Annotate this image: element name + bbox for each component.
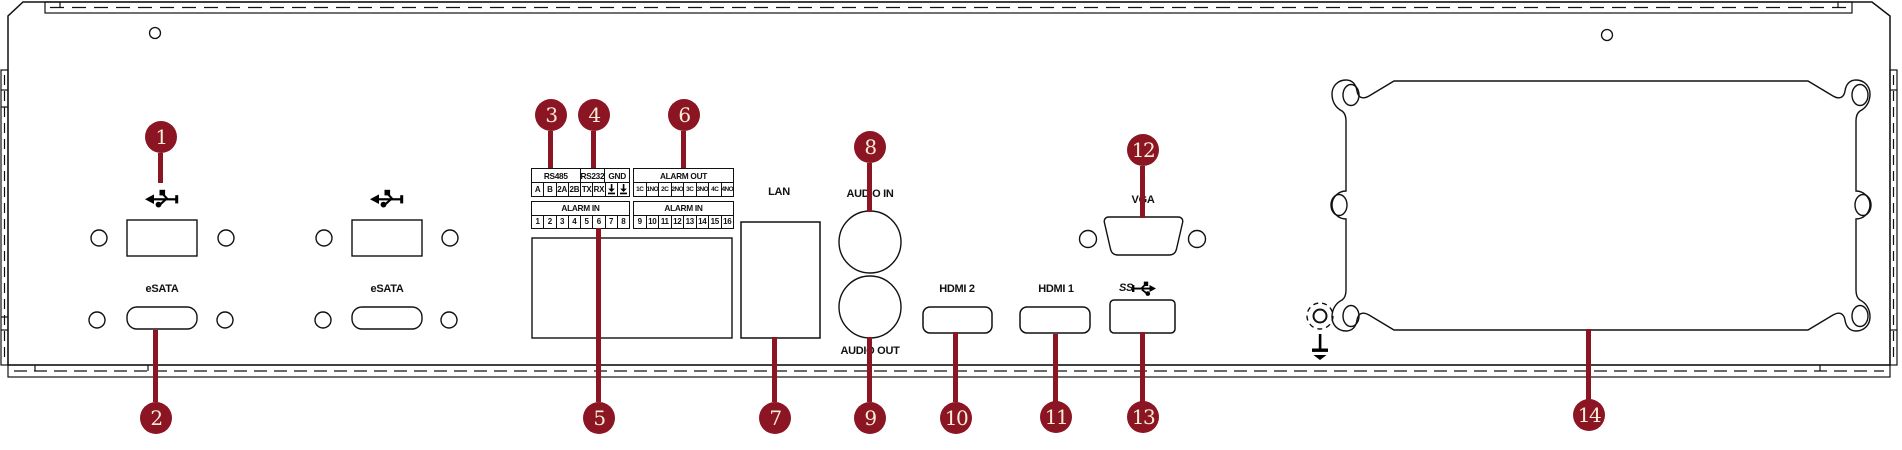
callout-stem-11	[1053, 334, 1058, 402]
callout-stem-7	[772, 337, 777, 402]
callout-stem-13	[1140, 332, 1145, 402]
callout-stem-1	[158, 153, 163, 183]
terminal-cell: 11	[658, 216, 671, 229]
plate-hole	[1343, 85, 1359, 106]
alarm-in-cell-row: 1 2 3 4 5 6 7 8	[532, 215, 629, 229]
callout-14: 14	[1573, 399, 1605, 431]
terminal-cell: 3NO	[696, 183, 709, 196]
esata-port-2	[315, 307, 457, 329]
screw-hole	[441, 312, 457, 328]
plate-hole	[1852, 85, 1868, 106]
alarm-in-header: ALARM IN	[532, 202, 629, 215]
terminal-cell: RX	[592, 183, 604, 196]
alarm-in-cell-row: 9 10 11 12 13 14 15 16	[634, 215, 733, 229]
callout-5: 5	[583, 402, 615, 434]
screw-hole	[1189, 231, 1206, 248]
callout-stem-10	[953, 332, 958, 402]
esata-port-1	[89, 307, 233, 329]
usb-port-2	[316, 220, 458, 256]
earth-ground-icon	[1312, 334, 1328, 360]
alarm-out-cell-row: 1C 1NO 2C 2NO 3C 3NO 4C 4NO	[634, 182, 733, 196]
usb3-ss-label: SS	[1119, 282, 1133, 294]
alarm-out-header-row: ALARM OUT	[634, 169, 733, 182]
hdmi2-label: HDMI 2	[939, 283, 974, 295]
terminal-cell: 14	[696, 216, 709, 229]
rs232-header: RS232	[580, 169, 605, 182]
gnd-header: GND	[604, 169, 629, 182]
chassis-line-art	[0, 0, 1902, 450]
terminal-cell: 10	[646, 216, 659, 229]
callout-stem-3	[548, 131, 553, 168]
alarm-in-header-row: ALARM IN	[532, 202, 629, 215]
ground-icon	[617, 183, 629, 196]
power-supply-plate	[1331, 80, 1871, 331]
plate-hole	[1331, 195, 1347, 216]
alarm-in-block-2: ALARM IN 9 10 11 12 13 14 15 16	[633, 201, 734, 229]
terminal-cell: 2B	[568, 183, 580, 196]
rs485-rs232-gnd-block: RS485 RS232 GND A B 2A 2B TX RX	[531, 168, 630, 197]
chassis-outline	[8, 2, 1890, 365]
callout-stem-12	[1140, 166, 1145, 218]
callout-stem-14	[1586, 329, 1591, 402]
alarm-in-block-1: ALARM IN 1 2 3 4 5 6 7 8	[531, 201, 630, 229]
terminal-cell: 3	[556, 216, 568, 229]
terminal-cell: 3C	[683, 183, 696, 196]
terminal-cell: 13	[683, 216, 696, 229]
terminal-cell: 9	[634, 216, 646, 229]
callout-8: 8	[854, 131, 886, 163]
terminal-cell: 16	[721, 216, 734, 229]
callout-12: 12	[1127, 134, 1159, 166]
top-flange	[45, 2, 1852, 13]
alarm-out-header: ALARM OUT	[634, 169, 733, 182]
callout-stem-8	[867, 163, 872, 212]
terminal-cell: 1	[532, 216, 543, 229]
ground-icon	[605, 183, 617, 196]
screw-hole	[91, 230, 107, 246]
usb-icon	[145, 190, 178, 208]
left-flange	[1, 70, 8, 365]
screw-hole	[1080, 231, 1097, 248]
callout-9: 9	[854, 402, 886, 434]
lan-port	[741, 222, 820, 338]
terminal-cell: 5	[580, 216, 592, 229]
esata2-label: eSATA	[371, 283, 404, 295]
hdmi1-port	[1020, 307, 1090, 333]
lan-label: LAN	[768, 186, 790, 198]
terminal-cell: 2NO	[671, 183, 684, 196]
esata1-label: eSATA	[146, 283, 179, 295]
screw-hole	[442, 230, 458, 246]
usb-icon	[370, 190, 403, 208]
callout-stem-2	[153, 330, 158, 402]
right-flange	[1890, 70, 1897, 365]
usb-port-1	[91, 220, 234, 256]
callout-11: 11	[1040, 401, 1072, 433]
plate-hole	[1852, 306, 1868, 327]
hdmi1-label: HDMI 1	[1038, 283, 1073, 295]
alarm-in-header: ALARM IN	[634, 202, 733, 215]
callout-4: 4	[578, 99, 610, 131]
terminal-cell: 12	[671, 216, 684, 229]
chassis-hole	[1602, 30, 1613, 41]
callout-3: 3	[535, 99, 567, 131]
terminal-cell: 1C	[634, 183, 646, 196]
rear-panel-diagram: eSATA eSATA LAN AUDIO IN AUDIO OUT HDMI …	[0, 0, 1902, 450]
callout-7: 7	[759, 402, 791, 434]
terminal-cell: B	[543, 183, 555, 196]
bottom-flange	[8, 365, 1890, 377]
terminal-cell: 2A	[556, 183, 568, 196]
rs485-header: RS485	[532, 169, 580, 182]
rs-header-row: RS485 RS232 GND	[532, 169, 629, 182]
ground-screw-icon	[1307, 303, 1333, 329]
terminal-cell: A	[532, 183, 543, 196]
callout-stem-4	[591, 131, 596, 168]
plate-hole	[1343, 306, 1359, 327]
terminal-cell: 4C	[708, 183, 721, 196]
plate-hole	[1855, 195, 1871, 216]
terminal-cell: 2C	[658, 183, 671, 196]
callout-stem-9	[867, 337, 872, 402]
usb3-port	[1110, 300, 1175, 333]
audio-out-connector	[839, 276, 901, 338]
terminal-cell: 6	[592, 216, 604, 229]
screw-hole	[217, 312, 233, 328]
alarm-out-block: ALARM OUT 1C 1NO 2C 2NO 3C 3NO 4C 4NO	[633, 168, 734, 197]
blank-module-plate	[532, 238, 732, 338]
callout-stem-5	[596, 228, 601, 402]
audio-in-connector	[839, 211, 901, 273]
callout-1: 1	[145, 121, 177, 153]
callout-stem-6	[681, 131, 686, 168]
terminal-cell: 4NO	[721, 183, 734, 196]
callout-6: 6	[668, 99, 700, 131]
callout-13: 13	[1127, 401, 1159, 433]
vga-connector	[1080, 217, 1206, 255]
callout-10: 10	[940, 402, 972, 434]
screw-hole	[218, 230, 234, 246]
terminal-cell: 1NO	[646, 183, 659, 196]
terminal-cell: 8	[617, 216, 629, 229]
chassis-hole	[150, 28, 161, 39]
callout-2: 2	[140, 402, 172, 434]
terminal-cell: 15	[708, 216, 721, 229]
screw-hole	[315, 312, 331, 328]
screw-hole	[89, 312, 105, 328]
usb-ss-icon	[1132, 282, 1156, 296]
hdmi2-port	[923, 307, 992, 333]
alarm-in-header-row: ALARM IN	[634, 202, 733, 215]
terminal-cell: 4	[568, 216, 580, 229]
screw-hole	[316, 230, 332, 246]
terminal-cell: 2	[543, 216, 555, 229]
rs-cell-row: A B 2A 2B TX RX	[532, 182, 629, 196]
terminal-cell: TX	[580, 183, 592, 196]
terminal-cell: 7	[605, 216, 617, 229]
